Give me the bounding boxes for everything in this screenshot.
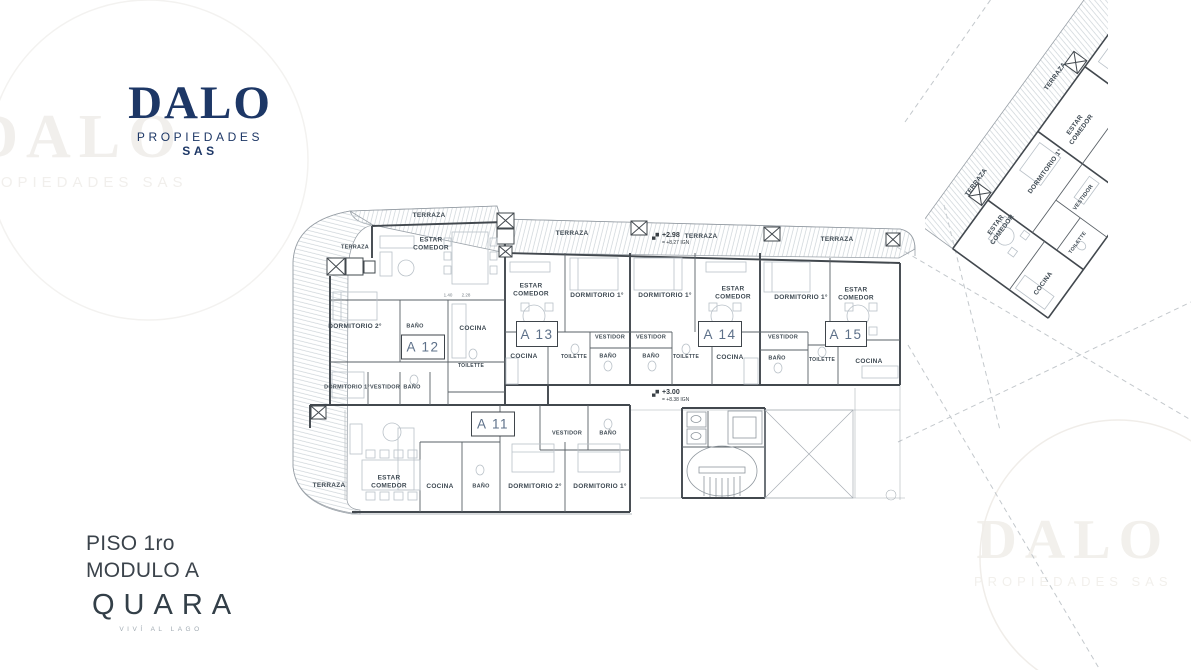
floor-title: PISO 1ro bbox=[86, 530, 199, 557]
logo-wordmark: DALO bbox=[118, 80, 282, 127]
floor-info: PISO 1ro MODULO A bbox=[86, 530, 199, 585]
dalo-logo: DALO PROPIEDADES SAS bbox=[118, 80, 282, 158]
logo-subtitle-text: PROPIEDADES bbox=[137, 130, 263, 144]
brand-wordmark: QUARA bbox=[92, 589, 236, 622]
brand-tagline: VIVÍ AL LAGO bbox=[86, 626, 236, 633]
logo-suffix: SAS bbox=[182, 144, 217, 158]
logo-subtitle: PROPIEDADES SAS bbox=[118, 130, 282, 158]
floorplan-page: DALO PROPIEDADES SAS DALO PROPIEDADES SA… bbox=[0, 0, 1191, 670]
module-title: MODULO A bbox=[86, 557, 199, 584]
quara-logo: QUARA VIVÍ AL LAGO bbox=[86, 589, 236, 633]
